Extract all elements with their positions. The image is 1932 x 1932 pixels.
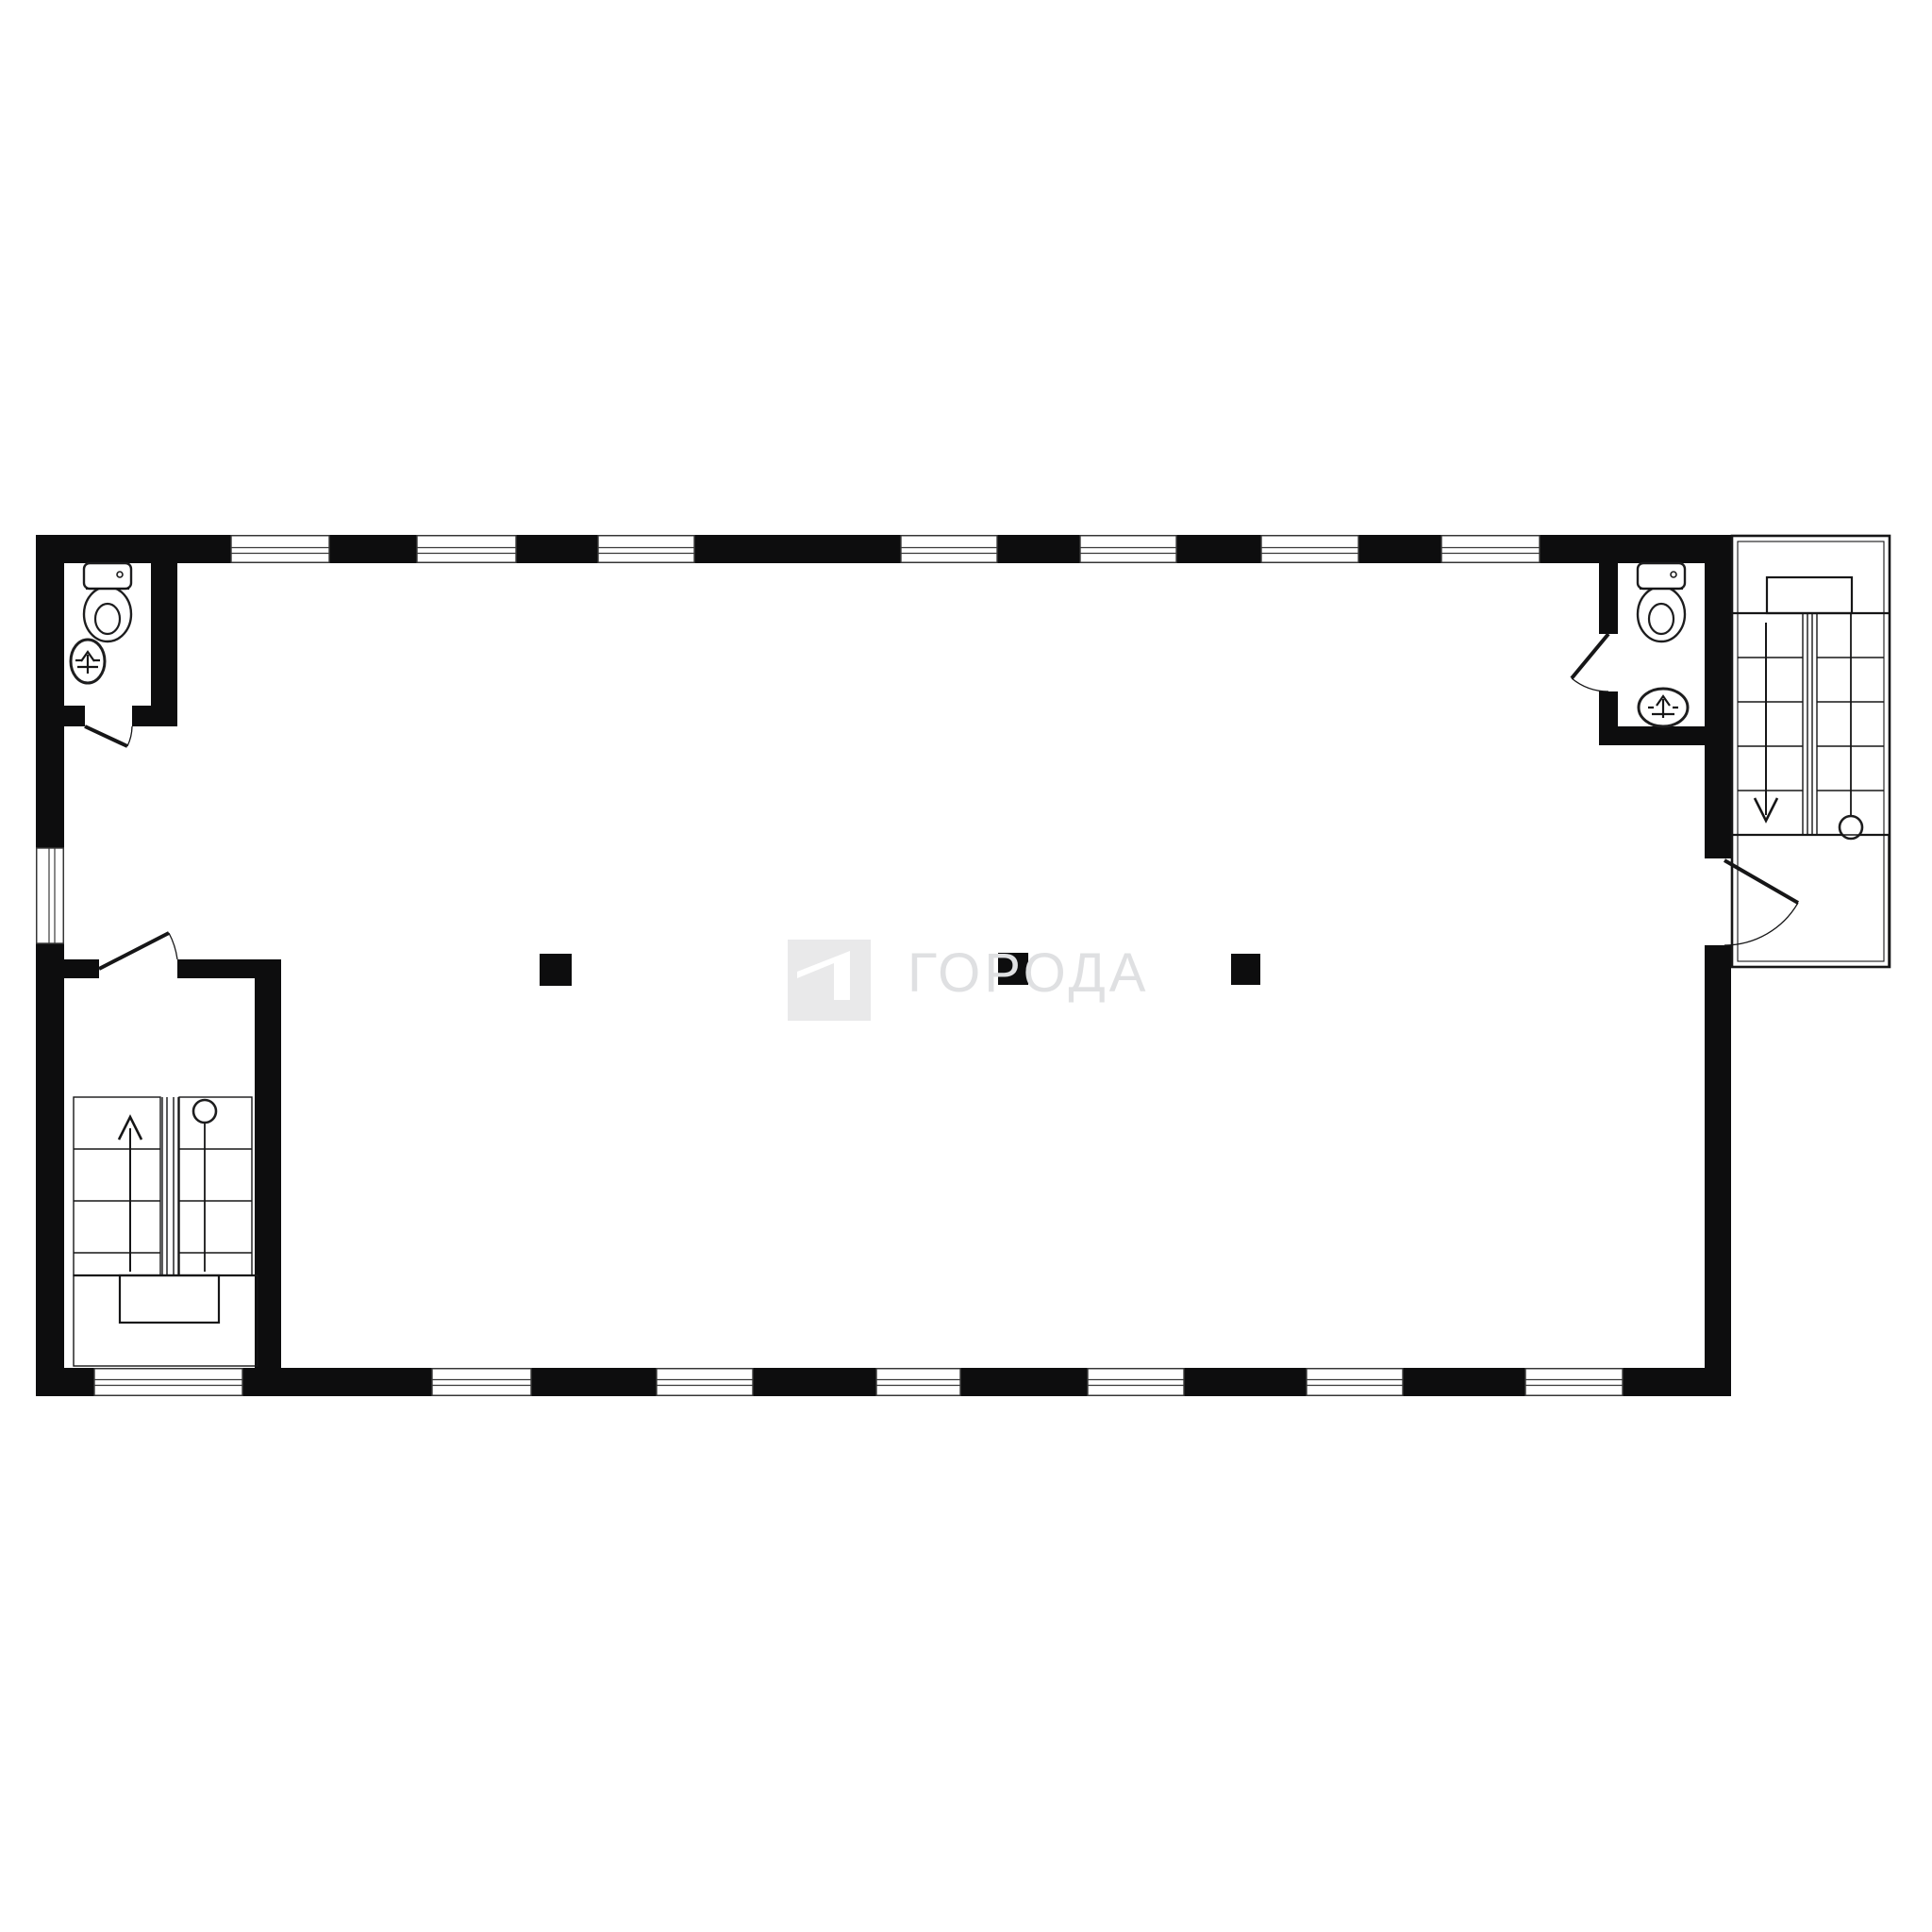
window-bottom [1525,1369,1623,1395]
toilet-icon [84,563,131,641]
sink-icon [71,640,105,683]
sink-icon [1639,689,1688,726]
stair-room-right-wall [255,978,281,1368]
window-bottom [1307,1369,1403,1395]
circle-start-icon [193,1100,216,1123]
gorod-logo [788,940,871,1021]
stair-room-top-wall-stub-left [64,959,99,978]
wall-left [36,535,64,1396]
watermark-text: ГОРОДА [908,942,1149,1004]
structural-column [1231,954,1260,985]
window-bottom [1088,1369,1184,1395]
window-top [901,536,997,562]
wall-right [1705,535,1731,1396]
floor-plan: ГОРОДА [0,0,1932,1932]
window-bottom [94,1369,242,1395]
window-top [1261,536,1358,562]
window-top [598,536,694,562]
window-bottom [876,1369,960,1395]
bathroom-tl-bottom-wall-stub-left [64,706,85,726]
window-left [37,848,63,943]
window-top [231,536,329,562]
bathroom-tl-right-wall [151,535,177,726]
structural-column [540,954,572,986]
door-opening-right-wall [1704,858,1732,945]
bathroom-tr-left-wall-upper [1599,535,1618,634]
bathroom-tr-bottom-wall [1599,726,1731,745]
stair-room-top-wall [177,959,281,978]
window-bottom [657,1369,753,1395]
bathroom-tl-bottom-wall-stub-right [132,706,177,726]
window-top [1441,536,1540,562]
toilet-icon [1638,563,1685,641]
window-top [1080,536,1176,562]
window-top [417,536,516,562]
window-bottom [432,1369,531,1395]
